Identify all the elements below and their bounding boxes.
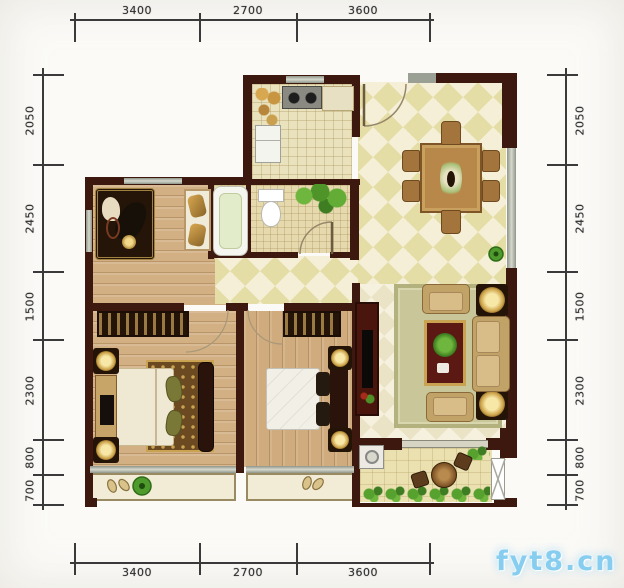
dim-label-left-3: 1500 [24,285,37,329]
top-tick [74,13,76,42]
sofa-cushion-2 [476,355,500,387]
right-tick [547,74,578,76]
cushion-shelf [184,189,211,251]
shower-plants [292,184,352,214]
wall-bay-corner-left [85,498,97,507]
bedroom2-pillow-2 [316,402,330,426]
bottom-tick [429,543,431,575]
washing-machine-drum [365,450,379,464]
table-decor [447,171,455,187]
bathtub-basin [219,193,242,249]
tv-cabinet-flowers [359,390,375,406]
bottom-tick [296,543,298,575]
bedroom2-headboard [330,366,348,432]
right-tick [547,164,578,166]
bedroom2-bed [264,366,348,432]
kitchen-window [286,76,324,83]
armchair-top [422,284,470,314]
bedroom2-lamp-top [328,346,352,370]
master-bay-window [88,473,236,501]
dim-label-right-1: 2050 [574,99,587,143]
refrigerator [255,125,281,163]
floor-plan-image: 3400 2700 3600 3400 2700 3600 2050 2450 … [0,0,624,588]
wall-corridor-south-2 [284,303,354,311]
dining-chair-left-1 [402,150,420,172]
gold-cushion [187,223,207,247]
dining-chair-bottom [441,210,461,234]
stove [282,86,322,109]
dim-label-bottom-1: 3400 [115,566,159,579]
dim-label-right-2: 2450 [574,197,587,241]
wall-bedroom-divider [236,303,244,473]
dim-label-top-2: 2700 [226,4,270,17]
dim-label-left-2: 2450 [24,197,37,241]
dim-label-right-6: 700 [574,469,587,513]
top-tick [296,13,298,42]
master-dresser [95,375,117,441]
bedroom2-lamp-bottom [328,428,352,452]
dining-chair-right-1 [482,150,500,172]
dining-chair-left-2 [402,180,420,202]
dim-label-left-6: 700 [24,469,37,513]
master-lamp-top [93,348,119,374]
left-tick [33,74,64,76]
master-bay-sill [90,466,236,473]
bedroom2-duvet [266,368,320,430]
kitchen-counter [322,86,354,111]
wall-balcony-bottom [356,503,508,507]
armchair-bottom-seat [433,397,467,416]
bathtub [213,186,248,256]
dining-chair-top [441,121,461,145]
dim-label-left-4: 2300 [24,369,37,413]
study-chair [106,217,120,239]
left-tick [33,439,64,441]
left-tick [33,271,64,273]
sofa [472,316,510,392]
study-ornate-rug [95,188,155,260]
coffee-table [424,320,466,386]
dim-label-top-1: 3400 [115,4,159,17]
left-tick [33,504,64,506]
wall-kitchen-left [243,75,252,183]
balcony-side-window [491,458,505,500]
right-tick [547,339,578,341]
right-tick [547,271,578,273]
wall-outer-right-top [502,73,517,148]
washing-machine [359,445,384,469]
master-wardrobe [97,311,189,337]
master-lamp-bottom [93,437,119,463]
entry-lintel [408,73,438,83]
corridor-floor [215,256,358,304]
toilet-bowl [261,201,281,227]
study-window-top [124,178,182,184]
top-tick [199,13,201,42]
living-lamp-bottom [476,388,508,420]
left-tick [33,474,64,476]
armchair-top-seat [429,292,463,311]
right-dim-line [565,68,567,510]
gold-cushion [187,193,208,218]
wall-dining-top [436,73,506,83]
food-items [254,88,284,126]
bottom-dim-line [70,562,434,564]
master-headboard [198,362,214,452]
watermark: fyt8.cn [496,546,617,577]
bottom-tick [199,543,201,575]
bedroom2-bay-sill [246,466,354,473]
bedroom2-wardrobe [283,311,341,337]
top-tick [429,13,431,42]
bottom-tick [74,543,76,575]
dim-label-bottom-2: 2700 [226,566,270,579]
bedroom2-bay-window [246,473,356,501]
coffee-table-plant [433,333,457,357]
dining-table [420,143,482,213]
armchair-bottom [426,392,474,422]
tv-cabinet [355,302,379,416]
sofa-cushion-1 [476,321,500,353]
master-tv [100,395,114,425]
study-window-left [86,210,92,252]
balcony-plant-border [362,486,490,502]
dim-label-right-3: 1500 [574,285,587,329]
study-lamp [122,235,136,249]
dim-label-bottom-3: 3600 [341,566,385,579]
bistro-table [431,462,457,488]
left-tick [33,339,64,341]
dim-label-left-1: 2050 [24,99,37,143]
dim-label-right-4: 2300 [574,369,587,413]
coffee-table-tray [437,363,449,373]
wall-corridor-south-1 [88,303,184,311]
top-dim-line [70,19,434,21]
tv-screen [362,330,373,388]
left-dim-line [42,68,44,510]
left-tick [33,164,64,166]
bedroom2-pillow-1 [316,372,330,396]
dining-chair-right-2 [482,180,500,202]
dim-label-top-3: 3600 [341,4,385,17]
living-lamp-top [476,284,508,316]
dining-window-right [507,148,516,268]
